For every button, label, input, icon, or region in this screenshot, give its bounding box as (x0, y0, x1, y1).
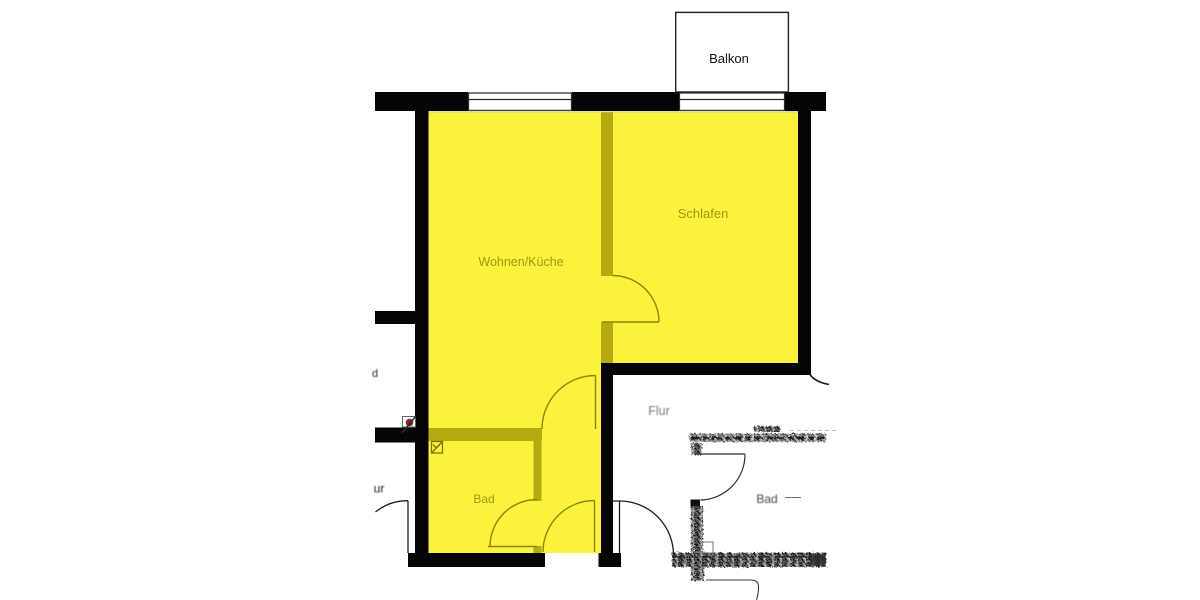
svg-text:Wohnen/Küche: Wohnen/Küche (478, 255, 563, 269)
svg-text:ur: ur (374, 482, 385, 496)
svg-text:Bad: Bad (756, 492, 777, 506)
svg-text:Schlafen: Schlafen (678, 206, 729, 221)
svg-text:Balkon: Balkon (709, 51, 749, 66)
svg-text:Flur: Flur (648, 404, 670, 418)
svg-text:d: d (372, 368, 378, 380)
svg-text:Bad: Bad (473, 492, 494, 506)
